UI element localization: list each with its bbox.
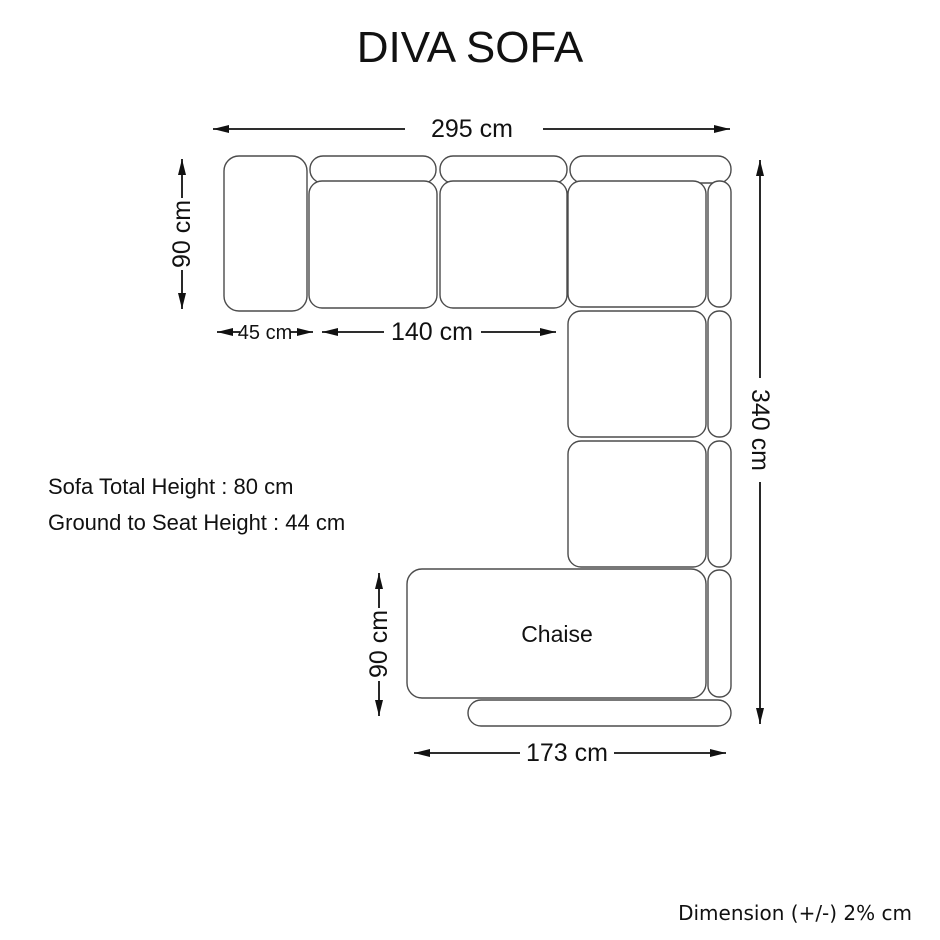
sofa-backrest-segment-2: [440, 156, 567, 183]
dimension-chaise-depth: 90 cm: [365, 573, 393, 716]
dimension-left-depth: 90 cm: [168, 159, 196, 309]
diva-sofa-dimension-diagram: DIVA SOFA Chaise: [0, 0, 940, 940]
tolerance-note: Dimension (+/-) 2% cm: [678, 901, 912, 925]
sofa-corner-seat: [568, 181, 706, 307]
dimension-total-width: 295 cm: [213, 115, 730, 143]
dimension-label-armrest-width: 45 cm: [238, 322, 292, 344]
sofa-outline-group: Chaise: [224, 156, 731, 726]
diagram-canvas: DIVA SOFA Chaise: [0, 0, 940, 940]
sofa-right-armrest-segment-3: [708, 441, 731, 567]
sofa-seat-2: [440, 181, 567, 308]
dimension-label-total-length: 340 cm: [746, 389, 774, 471]
page-title: DIVA SOFA: [357, 23, 584, 72]
dimension-label-seat-span: 140 cm: [391, 318, 473, 346]
dimension-chaise-width: 173 cm: [414, 739, 726, 767]
sofa-backrest-segment-1: [310, 156, 436, 183]
sofa-right-armrest-segment-2: [708, 311, 731, 437]
chaise-label: Chaise: [521, 621, 593, 647]
dimension-armrest-width: 45 cm: [217, 322, 313, 344]
dimension-label-chaise-depth: 90 cm: [365, 610, 393, 678]
sofa-right-armrest-segment-1: [708, 181, 731, 307]
dimension-label-left-depth: 90 cm: [168, 200, 196, 268]
sofa-seat-1: [309, 181, 437, 308]
sofa-left-armrest: [224, 156, 307, 311]
dimension-label-total-width: 295 cm: [431, 115, 513, 143]
sofa-right-armrest-segment-4: [708, 570, 731, 697]
dimension-total-length: 340 cm: [746, 160, 774, 724]
sofa-seat-4: [568, 441, 706, 567]
spec-total-height: Sofa Total Height : 80 cm: [48, 474, 293, 499]
sofa-seat-3: [568, 311, 706, 437]
dimension-label-chaise-width: 173 cm: [526, 739, 608, 767]
dimension-seat-span: 140 cm: [322, 318, 556, 346]
sofa-bottom-rail: [468, 700, 731, 726]
spec-ground-to-seat: Ground to Seat Height : 44 cm: [48, 510, 345, 535]
sofa-backrest-segment-3: [570, 156, 731, 183]
